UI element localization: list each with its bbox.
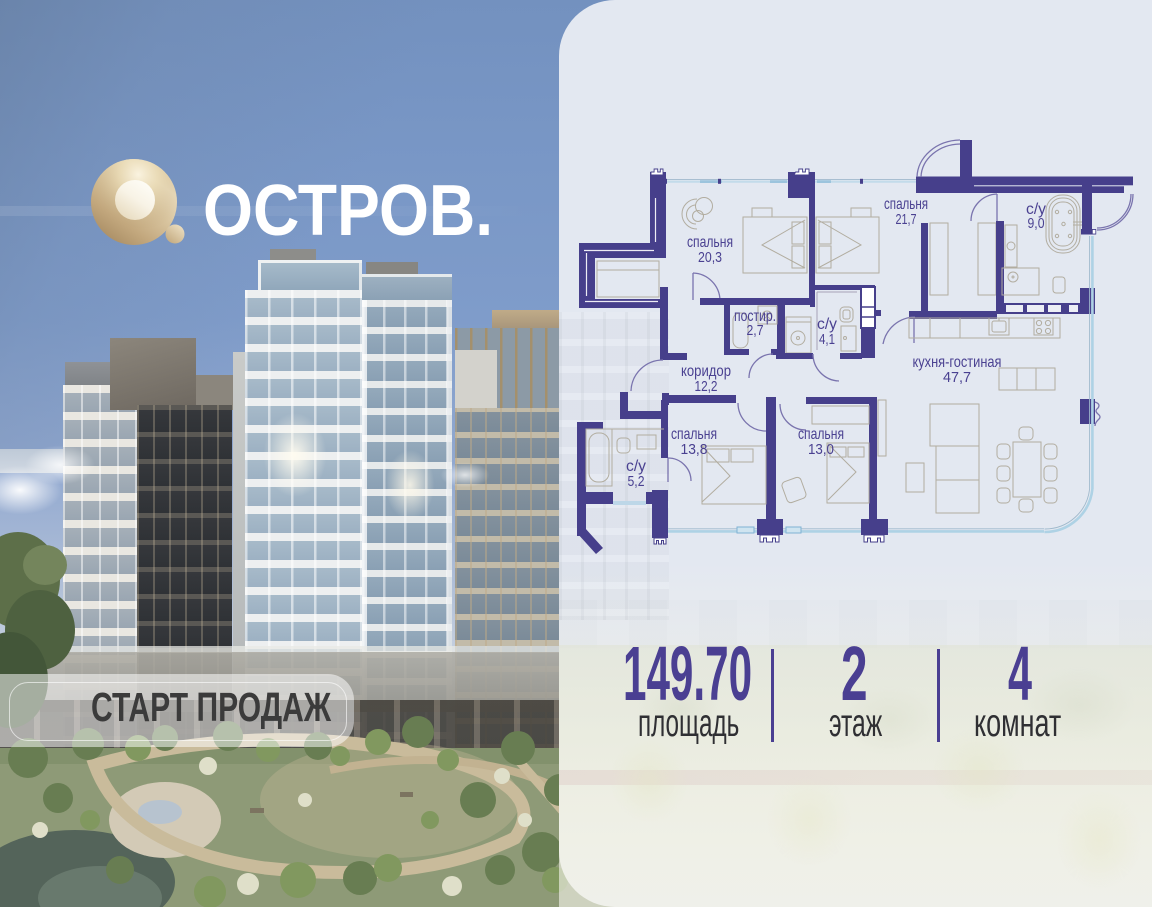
svg-text:47,7: 47,7 [943, 370, 971, 386]
svg-text:спальня: спальня [798, 426, 844, 443]
svg-text:кухня-гостиная: кухня-гостиная [913, 354, 1002, 371]
svg-text:спальня: спальня [687, 234, 733, 251]
svg-text:21,7: 21,7 [896, 212, 917, 228]
svg-text:13,8: 13,8 [681, 442, 708, 458]
svg-text:с/у: с/у [626, 458, 646, 475]
svg-text:с/у: с/у [817, 316, 837, 333]
svg-text:20,3: 20,3 [698, 250, 722, 266]
svg-text:2,7: 2,7 [747, 323, 764, 339]
svg-text:12,2: 12,2 [695, 379, 718, 395]
svg-text:4,1: 4,1 [819, 332, 835, 348]
svg-text:спальня: спальня [671, 426, 717, 443]
svg-text:13,0: 13,0 [808, 442, 834, 458]
svg-text:спальня: спальня [884, 196, 928, 213]
svg-text:9,0: 9,0 [1028, 216, 1045, 232]
svg-text:коридор: коридор [681, 363, 731, 380]
svg-text:5,2: 5,2 [628, 474, 645, 490]
